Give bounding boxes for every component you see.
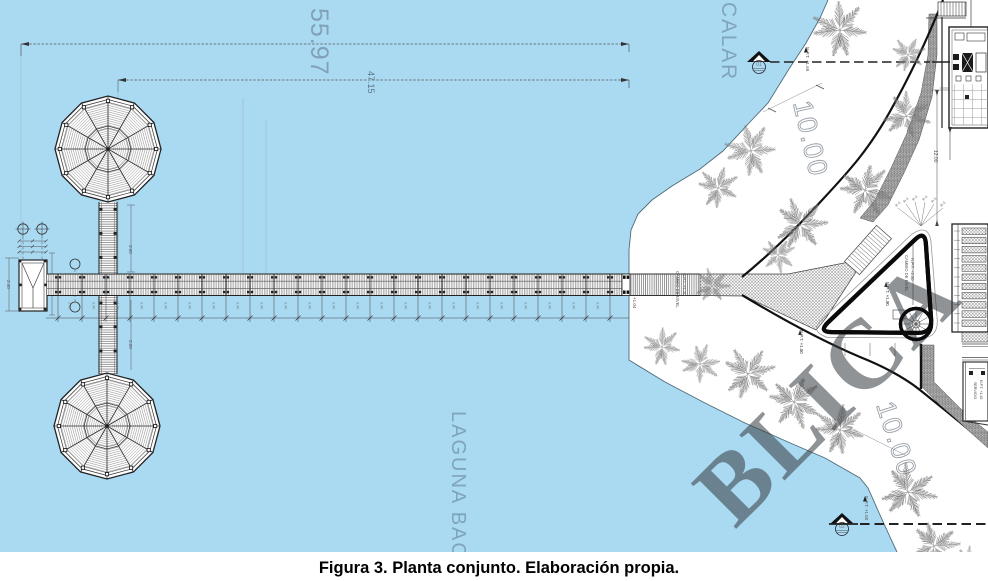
svg-text:3.00: 3.00 [128, 340, 133, 349]
svg-text:01: 01 [756, 62, 762, 68]
svg-text:LAGUNA BAC: LAGUNA BAC [447, 411, 469, 559]
svg-text:2.40: 2.40 [188, 302, 192, 309]
svg-text:2.40: 2.40 [332, 302, 336, 309]
svg-text:2.40: 2.40 [68, 302, 72, 309]
svg-text:2.40: 2.40 [548, 302, 552, 309]
svg-text:02: 02 [839, 524, 845, 530]
svg-text:2.40: 2.40 [524, 302, 528, 309]
svg-text:2.40: 2.40 [452, 302, 456, 309]
svg-text:N.P.T. +1.20: N.P.T. +1.20 [682, 273, 687, 296]
svg-text:2.40: 2.40 [260, 302, 264, 309]
svg-text:2.40: 2.40 [6, 280, 11, 289]
svg-text:2.40: 2.40 [596, 302, 600, 309]
svg-text:Figura 3. Planta conjunto. Ela: Figura 3. Planta conjunto. Elaboración p… [319, 559, 679, 577]
svg-text:2.40: 2.40 [140, 302, 144, 309]
svg-text:+1.04: +1.04 [632, 297, 637, 309]
svg-text:2.40: 2.40 [212, 302, 216, 309]
svg-text:2.40: 2.40 [356, 302, 360, 309]
svg-text:2.40: 2.40 [572, 302, 576, 309]
svg-text:N.P.T. +1.45: N.P.T. +1.45 [979, 380, 983, 399]
svg-text:2.40: 2.40 [500, 302, 504, 309]
svg-text:SERVICIO: SERVICIO [973, 382, 977, 399]
svg-text:2.40: 2.40 [164, 302, 168, 309]
svg-text:2.40: 2.40 [236, 302, 240, 309]
svg-text:12.00: 12.00 [932, 150, 938, 163]
svg-text:2.40: 2.40 [116, 302, 120, 309]
svg-text:2.40: 2.40 [284, 302, 288, 309]
svg-text:2.40: 2.40 [380, 302, 384, 309]
svg-text:2.40: 2.40 [404, 302, 408, 309]
svg-text:2.40: 2.40 [308, 302, 312, 309]
svg-text:CAMBIO DE NIVEL: CAMBIO DE NIVEL [675, 271, 680, 308]
svg-text:55.97: 55.97 [305, 8, 333, 76]
svg-text:2.40: 2.40 [428, 302, 432, 309]
svg-text:2.40: 2.40 [476, 302, 480, 309]
svg-text:3.00: 3.00 [128, 245, 133, 254]
svg-text:CALAR: CALAR [717, 2, 740, 81]
svg-text:2.40: 2.40 [92, 302, 96, 309]
svg-text:47.15: 47.15 [366, 71, 376, 94]
